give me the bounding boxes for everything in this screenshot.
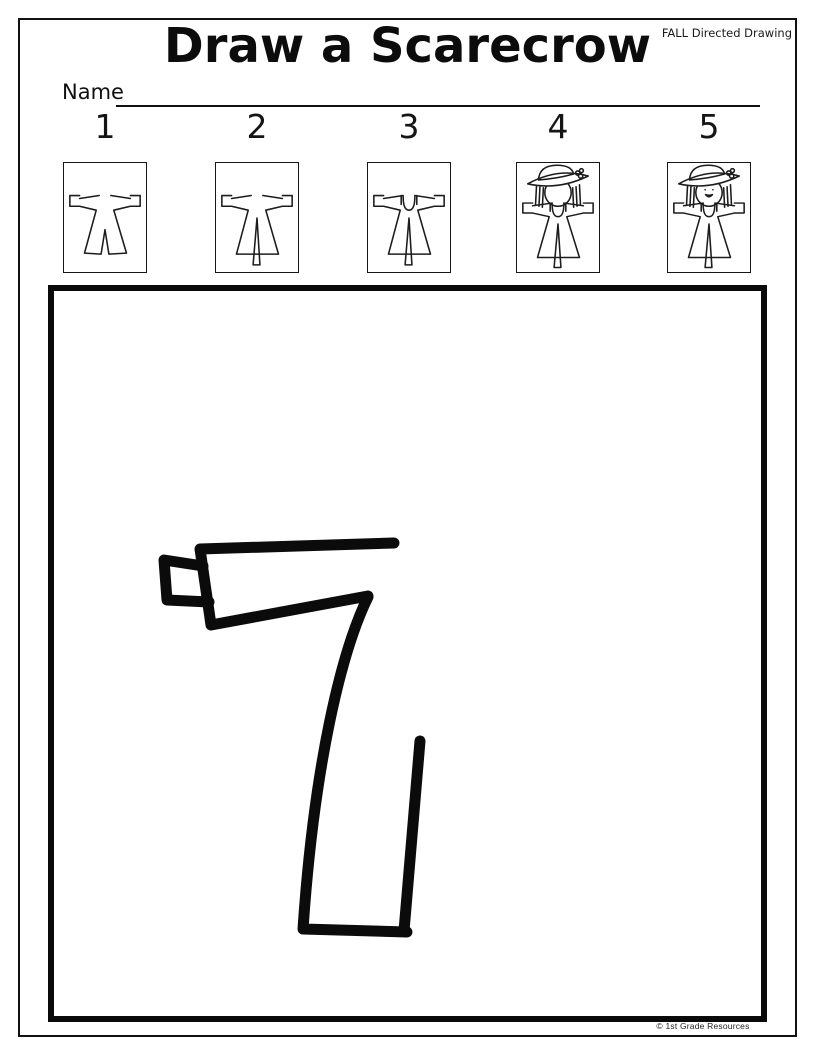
- drawing-canvas[interactable]: [48, 285, 767, 1022]
- step-1-thumbnail: [63, 162, 147, 273]
- name-label: Name: [62, 80, 124, 104]
- step-5-thumbnail: [667, 162, 751, 273]
- overalls-straps: [401, 196, 417, 211]
- name-row: Name: [62, 80, 762, 108]
- step-list: 1 2 3: [0, 108, 816, 278]
- step-1: 1: [63, 108, 147, 274]
- footer-credit: © 1st Grade Resources: [603, 1021, 803, 1031]
- step-3-thumbnail: [367, 162, 451, 273]
- step-2-number: 2: [215, 110, 299, 143]
- step-5-number: 5: [667, 110, 751, 143]
- pole-outline: [705, 224, 712, 268]
- name-blank-line[interactable]: [116, 80, 760, 107]
- scarecrow-step-4-drawing: [517, 163, 599, 272]
- step-3-number: 3: [367, 110, 451, 143]
- step-5: 5: [667, 108, 751, 274]
- step-3: 3: [367, 108, 451, 274]
- corner-label: FALL Directed Drawing: [662, 26, 792, 40]
- scarecrow-step-2-drawing: [216, 163, 298, 272]
- scarecrow-step-3-drawing: [368, 163, 450, 272]
- face-eyes-mouth: [705, 190, 713, 197]
- pole-outline: [405, 218, 412, 265]
- worksheet-page: Draw a Scarecrow FALL Directed Drawing N…: [0, 0, 816, 1056]
- scarecrow-step-1-drawing: [64, 163, 146, 272]
- step-1-number: 1: [63, 110, 147, 143]
- shirt-with-legs-outline: [70, 196, 140, 255]
- step-4: 4: [516, 108, 600, 274]
- pole-outline: [253, 218, 260, 265]
- step-2-thumbnail: [215, 162, 299, 273]
- scarecrow-step-5-drawing: [668, 163, 750, 272]
- step-4-number: 4: [516, 110, 600, 143]
- step-2: 2: [215, 108, 299, 274]
- pole-outline: [554, 224, 561, 268]
- hair-strands: [536, 185, 581, 207]
- step-4-thumbnail: [516, 162, 600, 273]
